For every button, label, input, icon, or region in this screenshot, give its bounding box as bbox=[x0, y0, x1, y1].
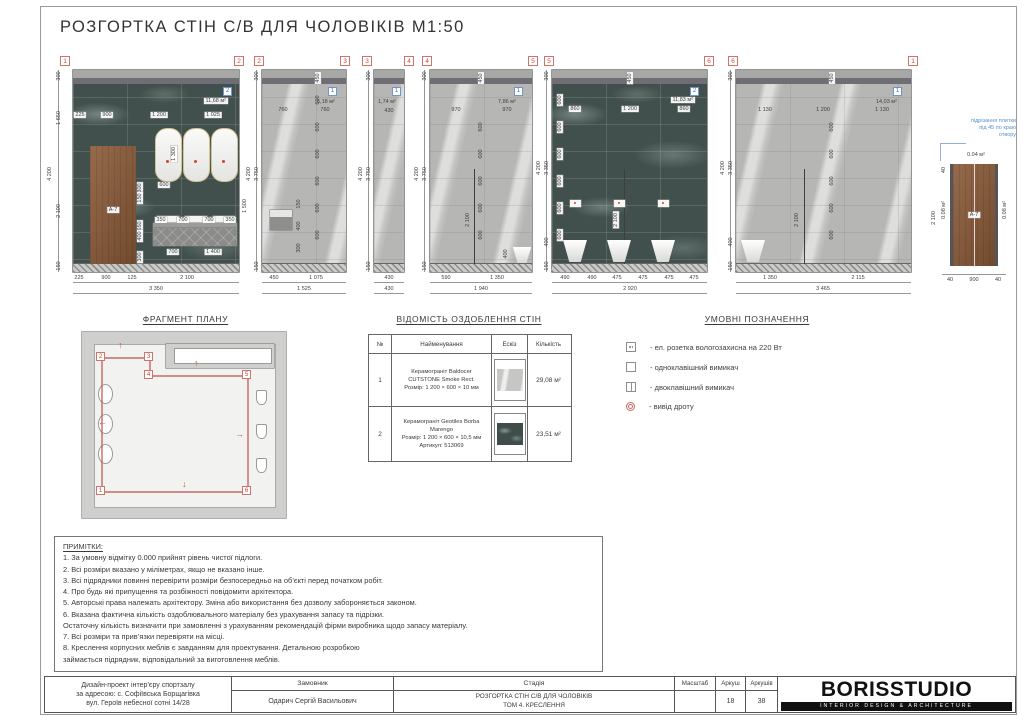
col-header: Ескіз bbox=[491, 335, 527, 353]
note-line: 4. Про будь які припущення та розбіжност… bbox=[63, 586, 594, 597]
dim-label: 970 bbox=[502, 107, 511, 113]
gray-tile-swatch bbox=[497, 369, 523, 391]
mirror bbox=[211, 128, 238, 182]
dim-label: 2 100 bbox=[931, 211, 937, 225]
elevation-wall-4-5: 4 5 300 3 750 4 200 150 450 1 7,86 м² 97… bbox=[416, 56, 542, 306]
dim-label: 700 bbox=[203, 217, 215, 223]
dim-label: 600 bbox=[829, 176, 835, 185]
dim-label: 1 200 bbox=[622, 106, 639, 112]
urinal bbox=[562, 240, 588, 262]
wire-outlet-icon bbox=[166, 160, 169, 163]
dim-label: 475 bbox=[612, 275, 621, 281]
scale-cell: Масштаб bbox=[674, 677, 715, 712]
wire-outlet-icon bbox=[662, 202, 664, 204]
dim-label: 3 750 bbox=[366, 167, 372, 181]
legend-item: - двоклавішний вимикач bbox=[626, 382, 734, 392]
socket-icon bbox=[626, 342, 636, 352]
dim-label: 1 075 bbox=[309, 275, 323, 281]
note-line: 6. Вказана фактична кількість оздоблювал… bbox=[63, 609, 594, 620]
dim-label: 600 bbox=[315, 230, 321, 239]
stage-line: ТОМ 4. КРЕСЛЕННЯ bbox=[503, 702, 565, 710]
dim-label: 150 bbox=[728, 261, 734, 270]
elevation-wall-3-4: 3 4 300 3 750 4 200 150 1 1,74 м² 430 43… bbox=[360, 56, 418, 306]
sheets-total: 38 bbox=[746, 691, 777, 712]
dim-label: 475 bbox=[638, 275, 647, 281]
dim-label: 3 350 bbox=[544, 161, 550, 175]
area-label: 11,83 м² bbox=[671, 97, 695, 103]
dim-label: 600 bbox=[829, 122, 835, 131]
dim-label: 2 115 bbox=[851, 275, 864, 281]
dim-label: 600 bbox=[557, 229, 563, 241]
dim-label: 150 bbox=[544, 261, 550, 270]
dim-label: 600 bbox=[557, 202, 563, 214]
dim-label: 900 bbox=[101, 112, 113, 118]
elevation-wall-1-2: 1 2 300 1 650 2 100 150 4 200 2 11,68 м²… bbox=[48, 56, 260, 306]
wall-marker: 6 bbox=[704, 56, 714, 66]
dim-label: 1 400 bbox=[205, 249, 222, 255]
wire-outlet-icon bbox=[618, 202, 620, 204]
material-swatch bbox=[491, 407, 527, 461]
dim-label: 150 bbox=[254, 261, 260, 270]
urinal bbox=[740, 240, 766, 262]
plan-marker: 3 bbox=[144, 352, 153, 361]
dim-label: 225 bbox=[74, 275, 83, 281]
dim-label: 1 350 bbox=[490, 275, 504, 281]
legend-item: - ел. розетка вологозахисна на 220 Вт bbox=[626, 342, 782, 352]
dim-label: 4 200 bbox=[47, 167, 53, 181]
dim-label: 1 025 bbox=[205, 112, 222, 118]
dim-label: 300 bbox=[254, 71, 260, 80]
legend-item: - вивід дроту bbox=[626, 402, 694, 411]
partition-edge bbox=[804, 169, 805, 264]
dim-label: 590 bbox=[441, 275, 450, 281]
dim-label: 300 bbox=[56, 71, 62, 80]
dim-label: 400 bbox=[503, 249, 509, 258]
wall-marker: 2 bbox=[254, 56, 264, 66]
note-line: займається підрядник, відповідальний за … bbox=[63, 654, 594, 665]
partition-edge bbox=[474, 169, 475, 264]
view-direction-arrow-icon: → bbox=[235, 430, 244, 439]
sheets-label: Аркушів bbox=[746, 677, 777, 691]
dim-label: 450 bbox=[829, 72, 835, 84]
dim-label: 600 bbox=[557, 175, 563, 187]
dim-label: 1 650 bbox=[56, 111, 62, 125]
studio-tagline: INTERIOR DESIGN & ARCHITECTURE bbox=[781, 702, 1012, 711]
dim-label: 1 200 bbox=[816, 107, 830, 113]
material-swatch bbox=[491, 354, 527, 406]
dim-label: 450 bbox=[315, 72, 321, 84]
material-marker: 1 bbox=[328, 87, 337, 96]
dim-label: 300 bbox=[728, 71, 734, 80]
dim-label: 400 bbox=[544, 237, 550, 246]
dim-label: 1 130 bbox=[758, 107, 772, 113]
dim-label: 1 300 bbox=[171, 146, 177, 163]
dim-label: 600 bbox=[478, 230, 484, 239]
dim-label: 2 100 bbox=[613, 212, 619, 229]
dim-label: 600 bbox=[478, 149, 484, 158]
dim-label: 600 bbox=[478, 176, 484, 185]
dim-label: 300 bbox=[544, 71, 550, 80]
sheet-number: 18 bbox=[716, 691, 745, 712]
dim-label: 600 bbox=[315, 122, 321, 131]
dim-label: 475 bbox=[689, 275, 698, 281]
material-marker: 1 bbox=[893, 87, 902, 96]
dim-label: 3 750 bbox=[422, 167, 428, 181]
dim-label: 600 bbox=[315, 149, 321, 158]
dim-label: 450 bbox=[478, 72, 484, 84]
dim-label: 2 100 bbox=[56, 204, 62, 218]
sheet-label: Аркуш bbox=[716, 677, 745, 691]
dim-label: 40 bbox=[947, 277, 953, 283]
dim-label: 860 bbox=[678, 106, 690, 112]
note-line: 5. Авторські права належать архітектору.… bbox=[63, 597, 594, 608]
wire-outlet-icon bbox=[626, 402, 635, 411]
dim-label: 2 100 bbox=[180, 275, 194, 281]
wire-outlet-icon bbox=[222, 160, 225, 163]
wall-surface: 450 1 7,86 м² 970 970 600 600 600 600 60… bbox=[430, 70, 532, 272]
dim-label: 400 bbox=[137, 230, 143, 242]
dim-label: 430 bbox=[384, 286, 393, 292]
hand-dryer bbox=[270, 210, 292, 230]
wire-outlet-icon bbox=[194, 160, 197, 163]
stage-line: РОЗГОРТКА СТІН С/В ДЛЯ ЧОЛОВІКІВ bbox=[476, 693, 593, 701]
plan-marker: 1 bbox=[96, 486, 105, 495]
material-marker: 1 bbox=[392, 87, 401, 96]
urinal bbox=[650, 240, 676, 262]
wall-marker: 4 bbox=[404, 56, 414, 66]
sheets-total-cell: Аркушів 38 bbox=[745, 677, 777, 712]
dim-label: 350 bbox=[224, 217, 236, 223]
dim-label: 760 bbox=[278, 107, 287, 113]
material-marker: 2 bbox=[223, 87, 232, 96]
wall-marker: 1 bbox=[908, 56, 918, 66]
wall-marker: 6 bbox=[728, 56, 738, 66]
dim-label: 430 bbox=[384, 275, 393, 281]
stage-label: Стадія bbox=[394, 677, 674, 691]
project-line: Дизайн-проект інтер’єру спортзалу bbox=[81, 681, 194, 690]
dim-label: 600 bbox=[315, 95, 321, 104]
plan-marker: 2 bbox=[96, 352, 105, 361]
material-name: Керамограніт Geotiles Borba Marengo Розм… bbox=[391, 407, 491, 461]
dim-label: 970 bbox=[451, 107, 460, 113]
dim-label: 4 200 bbox=[536, 161, 542, 175]
elevation-extent-outline bbox=[78, 314, 293, 529]
dim-label: 900 bbox=[101, 275, 110, 281]
wall-marker: 4 bbox=[422, 56, 432, 66]
dim-label: 600 bbox=[557, 94, 563, 106]
dim-label: 1 500 bbox=[242, 199, 248, 213]
dim-label: 600 bbox=[829, 230, 835, 239]
area-label: 11,68 м² bbox=[204, 98, 228, 104]
quantity: 23,51 м² bbox=[527, 407, 569, 461]
wall-surface: 450 2 11,83 м² 860 1 200 860 600 600 600… bbox=[552, 70, 707, 272]
dim-label: 3 350 bbox=[149, 286, 163, 292]
notes-title: ПРИМІТКИ: bbox=[63, 541, 594, 552]
view-direction-arrow-icon: ↑ bbox=[118, 341, 123, 350]
dim-label: 600 bbox=[158, 182, 170, 188]
dim-label: 0.08 м² bbox=[941, 201, 947, 219]
studio-logo: BORISSTUDIO bbox=[778, 679, 1015, 701]
dim-label: 600 bbox=[557, 121, 563, 133]
dim-label: 450 bbox=[627, 72, 633, 84]
wall-surface: 450 1 6,18 м² 760 760 600 600 600 600 60… bbox=[262, 70, 346, 272]
dim-label: 225 bbox=[74, 112, 86, 118]
mirror bbox=[155, 128, 182, 182]
area-label: 1,74 м² bbox=[378, 99, 396, 105]
wall-surface: 450 1 14,03 м² 1 130 1 200 1 130 600 600… bbox=[736, 70, 911, 272]
dim-label: 3 350 bbox=[728, 161, 734, 175]
dim-label: 150 bbox=[137, 192, 143, 204]
elevation-wall-2-3: 2 3 300 3 750 4 200 150 450 1 6,18 м² 76… bbox=[248, 56, 360, 306]
client-cell: Замовник Одарич Сергій Васильович bbox=[231, 677, 393, 712]
view-direction-arrow-icon: ↑ bbox=[194, 359, 199, 368]
dim-label: 1 525 bbox=[297, 286, 311, 292]
scale-label: Масштаб bbox=[675, 677, 715, 691]
note-line: Остаточну кількість визначити при замовл… bbox=[63, 620, 594, 631]
dim-label: 600 bbox=[557, 148, 563, 160]
quantity: 29,08 м² bbox=[527, 354, 569, 406]
col-header: № bbox=[369, 335, 391, 353]
dim-label: 150 bbox=[56, 261, 62, 270]
wall-marker: 1 bbox=[60, 56, 70, 66]
wall-marker: 5 bbox=[544, 56, 554, 66]
dim-label: 2 100 bbox=[465, 213, 471, 227]
double-switch-icon bbox=[626, 382, 636, 392]
urinal bbox=[512, 247, 532, 263]
stage-cell: Стадія РОЗГОРТКА СТІН С/В ДЛЯ ЧОЛОВІКІВ … bbox=[393, 677, 674, 712]
note-line: 2. Всі розміри вказано у міліметрах, якщ… bbox=[63, 564, 594, 575]
wall-surface: 1 1,74 м² 430 bbox=[374, 70, 404, 272]
studio-logo-cell: BORISSTUDIO INTERIOR DESIGN & ARCHITECTU… bbox=[777, 677, 1015, 712]
dim-label: 490 bbox=[587, 275, 596, 281]
door-label: А-7 bbox=[107, 207, 119, 213]
sheet-number-cell: Аркуш 18 bbox=[715, 677, 745, 712]
dim-label: 2 100 bbox=[794, 213, 800, 227]
dim-label: 125 bbox=[127, 275, 136, 281]
area-label: 7,86 м² bbox=[498, 99, 516, 105]
door bbox=[90, 146, 136, 264]
note-line: 3. Всі підрядники повинні перевірити роз… bbox=[63, 575, 594, 586]
elevation-wall-5-6: 5 6 300 3 350 4 200 400 150 450 2 11,83 … bbox=[538, 56, 720, 306]
col-header: Найменування bbox=[391, 335, 491, 353]
dim-label: 40 bbox=[995, 277, 1001, 283]
dim-label: 400 bbox=[296, 221, 302, 230]
tile-cut-note: підрізання плитки під 45 по краю отвору bbox=[946, 118, 1016, 139]
dim-label: 2 920 bbox=[623, 286, 637, 292]
dim-label: 300 bbox=[137, 251, 143, 263]
wire-outlet-icon bbox=[574, 202, 576, 204]
view-direction-arrow-icon: ← bbox=[98, 418, 107, 427]
project-line: вул. Героїв небесної сотні 14/28 bbox=[86, 699, 190, 708]
dim-label: 150 bbox=[366, 261, 372, 270]
dim-label: 760 bbox=[320, 107, 329, 113]
marble-tile-swatch bbox=[497, 423, 523, 445]
dim-label: 600 bbox=[829, 149, 835, 158]
plan-marker: 5 bbox=[242, 370, 251, 379]
dim-label: 1 350 bbox=[763, 275, 777, 281]
area-label: 0.04 м² bbox=[967, 152, 985, 158]
title-block: Дизайн-проект інтер’єру спортзалу за адр… bbox=[44, 676, 1016, 713]
dim-label: 600 bbox=[315, 203, 321, 212]
wall-marker: 2 bbox=[234, 56, 244, 66]
dim-label: 400 bbox=[728, 237, 734, 246]
dim-label: 600 bbox=[478, 122, 484, 131]
dim-label: 4 200 bbox=[246, 167, 252, 181]
row-number: 1 bbox=[369, 354, 391, 406]
dim-label: 4 200 bbox=[358, 167, 364, 181]
vanity-cabinet bbox=[153, 228, 237, 246]
legend-title: УМОВНІ ПОЗНАЧЕННЯ bbox=[632, 314, 882, 324]
door-detail: підрізання плитки під 45 по краю отвору … bbox=[928, 118, 1024, 313]
note-line: 8. Креслення корпусних меблів є завдання… bbox=[63, 642, 594, 653]
single-switch-icon bbox=[626, 362, 636, 372]
dim-label: 900 bbox=[969, 277, 978, 283]
note-line: 1. За умовну відмітку 0.000 прийнят ріве… bbox=[63, 552, 594, 563]
project-info-cell: Дизайн-проект інтер’єру спортзалу за адр… bbox=[45, 677, 231, 712]
view-direction-arrow-icon: ↓ bbox=[182, 480, 187, 489]
area-label: 14,03 м² bbox=[876, 99, 897, 105]
dim-label: 860 bbox=[569, 106, 581, 112]
plan-marker: 6 bbox=[242, 486, 251, 495]
dim-label: 475 bbox=[664, 275, 673, 281]
dim-label: 700 bbox=[167, 249, 179, 255]
note-line: 7. Всі розміри та прив’язки перевіряти н… bbox=[63, 631, 594, 642]
dim-label: 3 750 bbox=[254, 167, 260, 181]
door-label: А-7 bbox=[968, 212, 980, 218]
dim-label: 700 bbox=[177, 217, 189, 223]
notes-box: ПРИМІТКИ: 1. За умовну відмітку 0.000 пр… bbox=[54, 536, 603, 672]
dim-label: 350 bbox=[155, 217, 167, 223]
table-row: 2 Керамограніт Geotiles Borba Marengo Ро… bbox=[369, 406, 571, 461]
dim-label: 4 200 bbox=[720, 161, 726, 175]
material-marker: 2 bbox=[690, 87, 699, 96]
plan-fragment: ФРАГМЕНТ ПЛАНУ 2 3 4 5 1 6 ↑ ↑ ← → ↓ bbox=[78, 314, 293, 529]
legend-item: - одноклавішний вимикач bbox=[626, 362, 738, 372]
project-line: за адресою: с. Софіївська Борщагівка bbox=[76, 690, 200, 699]
dim-label: 600 bbox=[478, 203, 484, 212]
material-name: Керамограніт Baldocer CUTSTONE Smoke Rec… bbox=[391, 354, 491, 406]
client-label: Замовник bbox=[232, 677, 393, 691]
drawing-sheet: РОЗГОРТКА СТІН С/В ДЛЯ ЧОЛОВІКІВ М1:50 1… bbox=[0, 0, 1024, 724]
dim-label: 1 130 bbox=[875, 107, 889, 113]
dim-label: 600 bbox=[315, 176, 321, 185]
material-marker: 1 bbox=[514, 87, 523, 96]
dim-label: 3 465 bbox=[816, 286, 830, 292]
mirror bbox=[183, 128, 210, 182]
wall-marker: 3 bbox=[362, 56, 372, 66]
dim-label: 300 bbox=[366, 71, 372, 80]
urinal bbox=[606, 240, 632, 262]
client-name: Одарич Сергій Васильович bbox=[232, 691, 393, 712]
wall-surface: 2 11,68 м² 225 900 1 200 1 025 А-7 300 1… bbox=[73, 70, 239, 272]
dim-label: 1 200 bbox=[151, 112, 168, 118]
elevation-wall-6-1: 6 1 300 3 350 4 200 400 150 450 1 14,03 … bbox=[722, 56, 924, 306]
wall-marker: 3 bbox=[340, 56, 350, 66]
table-row: 1 Керамограніт Baldocer CUTSTONE Smoke R… bbox=[369, 353, 571, 406]
dim-label: 1 940 bbox=[474, 286, 488, 292]
scale-value bbox=[675, 691, 715, 712]
dim-label: 0.08 м² bbox=[1002, 201, 1008, 219]
col-header: Кількість bbox=[527, 335, 569, 353]
dim-label: 150 bbox=[296, 199, 302, 208]
dim-label: 4 200 bbox=[414, 167, 420, 181]
dim-label: 300 bbox=[422, 71, 428, 80]
dim-label: 450 bbox=[269, 275, 278, 281]
finish-schedule-title: ВІДОМІСТЬ ОЗДОБЛЕННЯ СТІН bbox=[366, 314, 572, 324]
dim-label: 150 bbox=[422, 261, 428, 270]
page-title: РОЗГОРТКА СТІН С/В ДЛЯ ЧОЛОВІКІВ М1:50 bbox=[60, 18, 465, 37]
dim-label: 40 bbox=[941, 167, 947, 173]
row-number: 2 bbox=[369, 407, 391, 461]
dim-label: 490 bbox=[560, 275, 569, 281]
wall-marker: 5 bbox=[528, 56, 538, 66]
plan-marker: 4 bbox=[144, 370, 153, 379]
dim-label: 430 bbox=[384, 108, 393, 114]
dim-label: 300 bbox=[296, 243, 302, 252]
dim-label: 600 bbox=[829, 203, 835, 212]
